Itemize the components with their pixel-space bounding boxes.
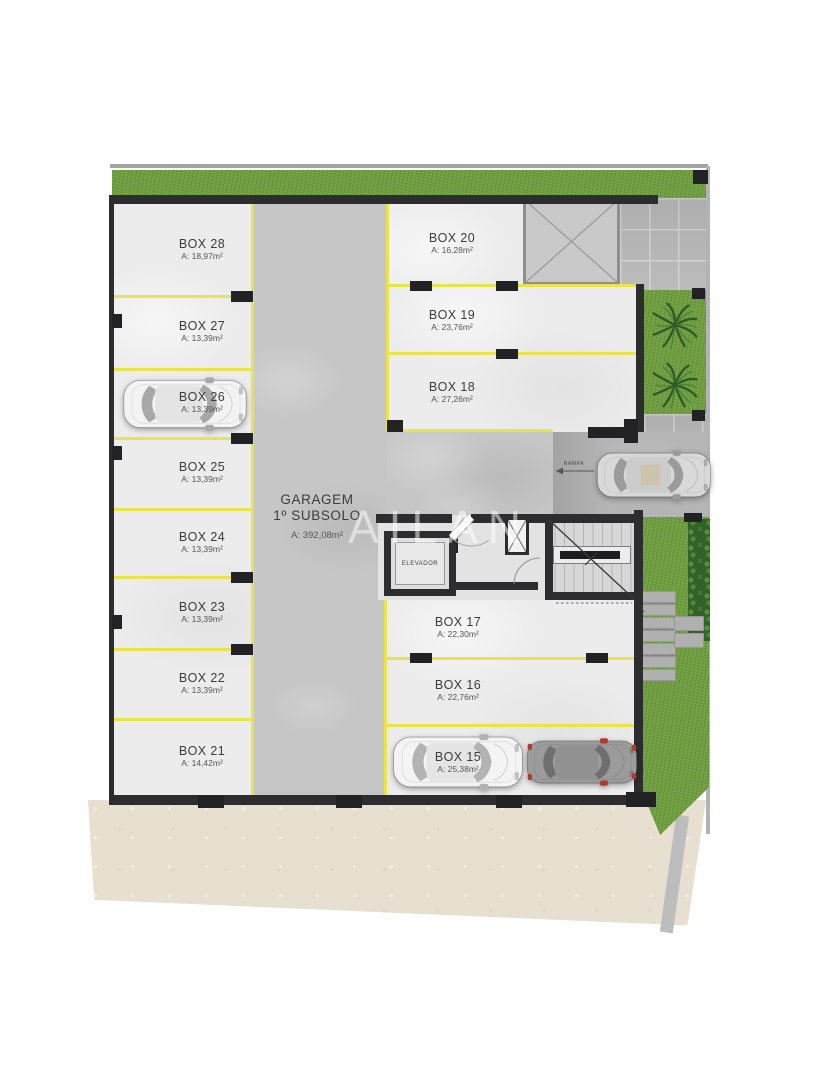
wall-right-upper	[636, 284, 644, 432]
box-18-label: BOX 18 A: 27,26m²	[392, 380, 512, 405]
wall-bottom	[109, 795, 655, 805]
parking-line	[389, 429, 553, 432]
box-27-label: BOX 27 A: 13,39m²	[142, 319, 262, 344]
column	[112, 615, 122, 629]
parking-line	[386, 203, 389, 432]
garage-floor-plan: ELEVADOR A	[0, 0, 822, 1080]
box-25-label: BOX 25 A: 13,39m²	[142, 460, 262, 485]
column	[231, 291, 253, 302]
column	[387, 420, 403, 432]
column	[693, 170, 708, 184]
box-28-label: BOX 28 A: 18,97m²	[142, 237, 262, 262]
box-21-label: BOX 21 A: 14,42m²	[142, 744, 262, 769]
box-22-label: BOX 22 A: 13,39m²	[142, 671, 262, 696]
parking-line	[114, 508, 251, 511]
column	[496, 281, 518, 291]
parking-line	[114, 718, 251, 721]
column	[496, 349, 518, 359]
box-17-label: BOX 17 A: 22,30m²	[398, 615, 518, 640]
box-20-label: BOX 20 A: 16,28m²	[392, 231, 512, 256]
car-icon	[596, 446, 712, 504]
top-boundary-line	[110, 164, 708, 168]
pavers-top-right	[620, 198, 706, 290]
column	[692, 288, 705, 299]
wall-left	[109, 195, 114, 803]
elevator-label: ELEVADOR	[402, 561, 438, 567]
car-icon	[526, 734, 638, 790]
garden-step	[674, 616, 704, 631]
column	[684, 513, 702, 522]
column	[231, 644, 253, 655]
ramp-label: RAMPA	[552, 461, 596, 467]
column	[198, 795, 224, 808]
box-19-label: BOX 19 A: 23,76m²	[392, 308, 512, 333]
column	[624, 419, 638, 443]
column	[496, 795, 522, 808]
column	[410, 281, 432, 291]
wall-top	[110, 195, 658, 204]
box-26-label: BOX 26 A: 13,39m²	[142, 390, 262, 415]
parking-line	[387, 724, 634, 727]
column	[231, 433, 253, 444]
stair-handrail	[553, 546, 631, 564]
box-16-label: BOX 16 A: 22,76m²	[398, 678, 518, 703]
parking-line	[384, 600, 387, 795]
hatched-void	[523, 198, 620, 285]
column	[336, 795, 362, 808]
palm-icon	[646, 356, 704, 414]
garden-step	[674, 633, 704, 648]
column	[112, 446, 122, 460]
column	[692, 410, 705, 421]
watermark: AILAN	[348, 500, 531, 554]
parking-line	[114, 368, 251, 371]
column	[626, 792, 656, 807]
palm-icon	[646, 296, 704, 354]
sand-area	[88, 800, 706, 928]
grass-strip-top	[112, 170, 706, 198]
box-15-label: BOX 15 A: 25,38m²	[398, 750, 518, 775]
column	[586, 653, 608, 663]
column	[231, 572, 253, 583]
wall-lobby-bottom	[456, 582, 538, 590]
column	[410, 653, 432, 663]
column	[112, 314, 122, 328]
box-23-label: BOX 23 A: 13,39m²	[142, 600, 262, 625]
wall-stair-bottom	[545, 592, 641, 600]
wall-stair-left	[545, 514, 553, 598]
